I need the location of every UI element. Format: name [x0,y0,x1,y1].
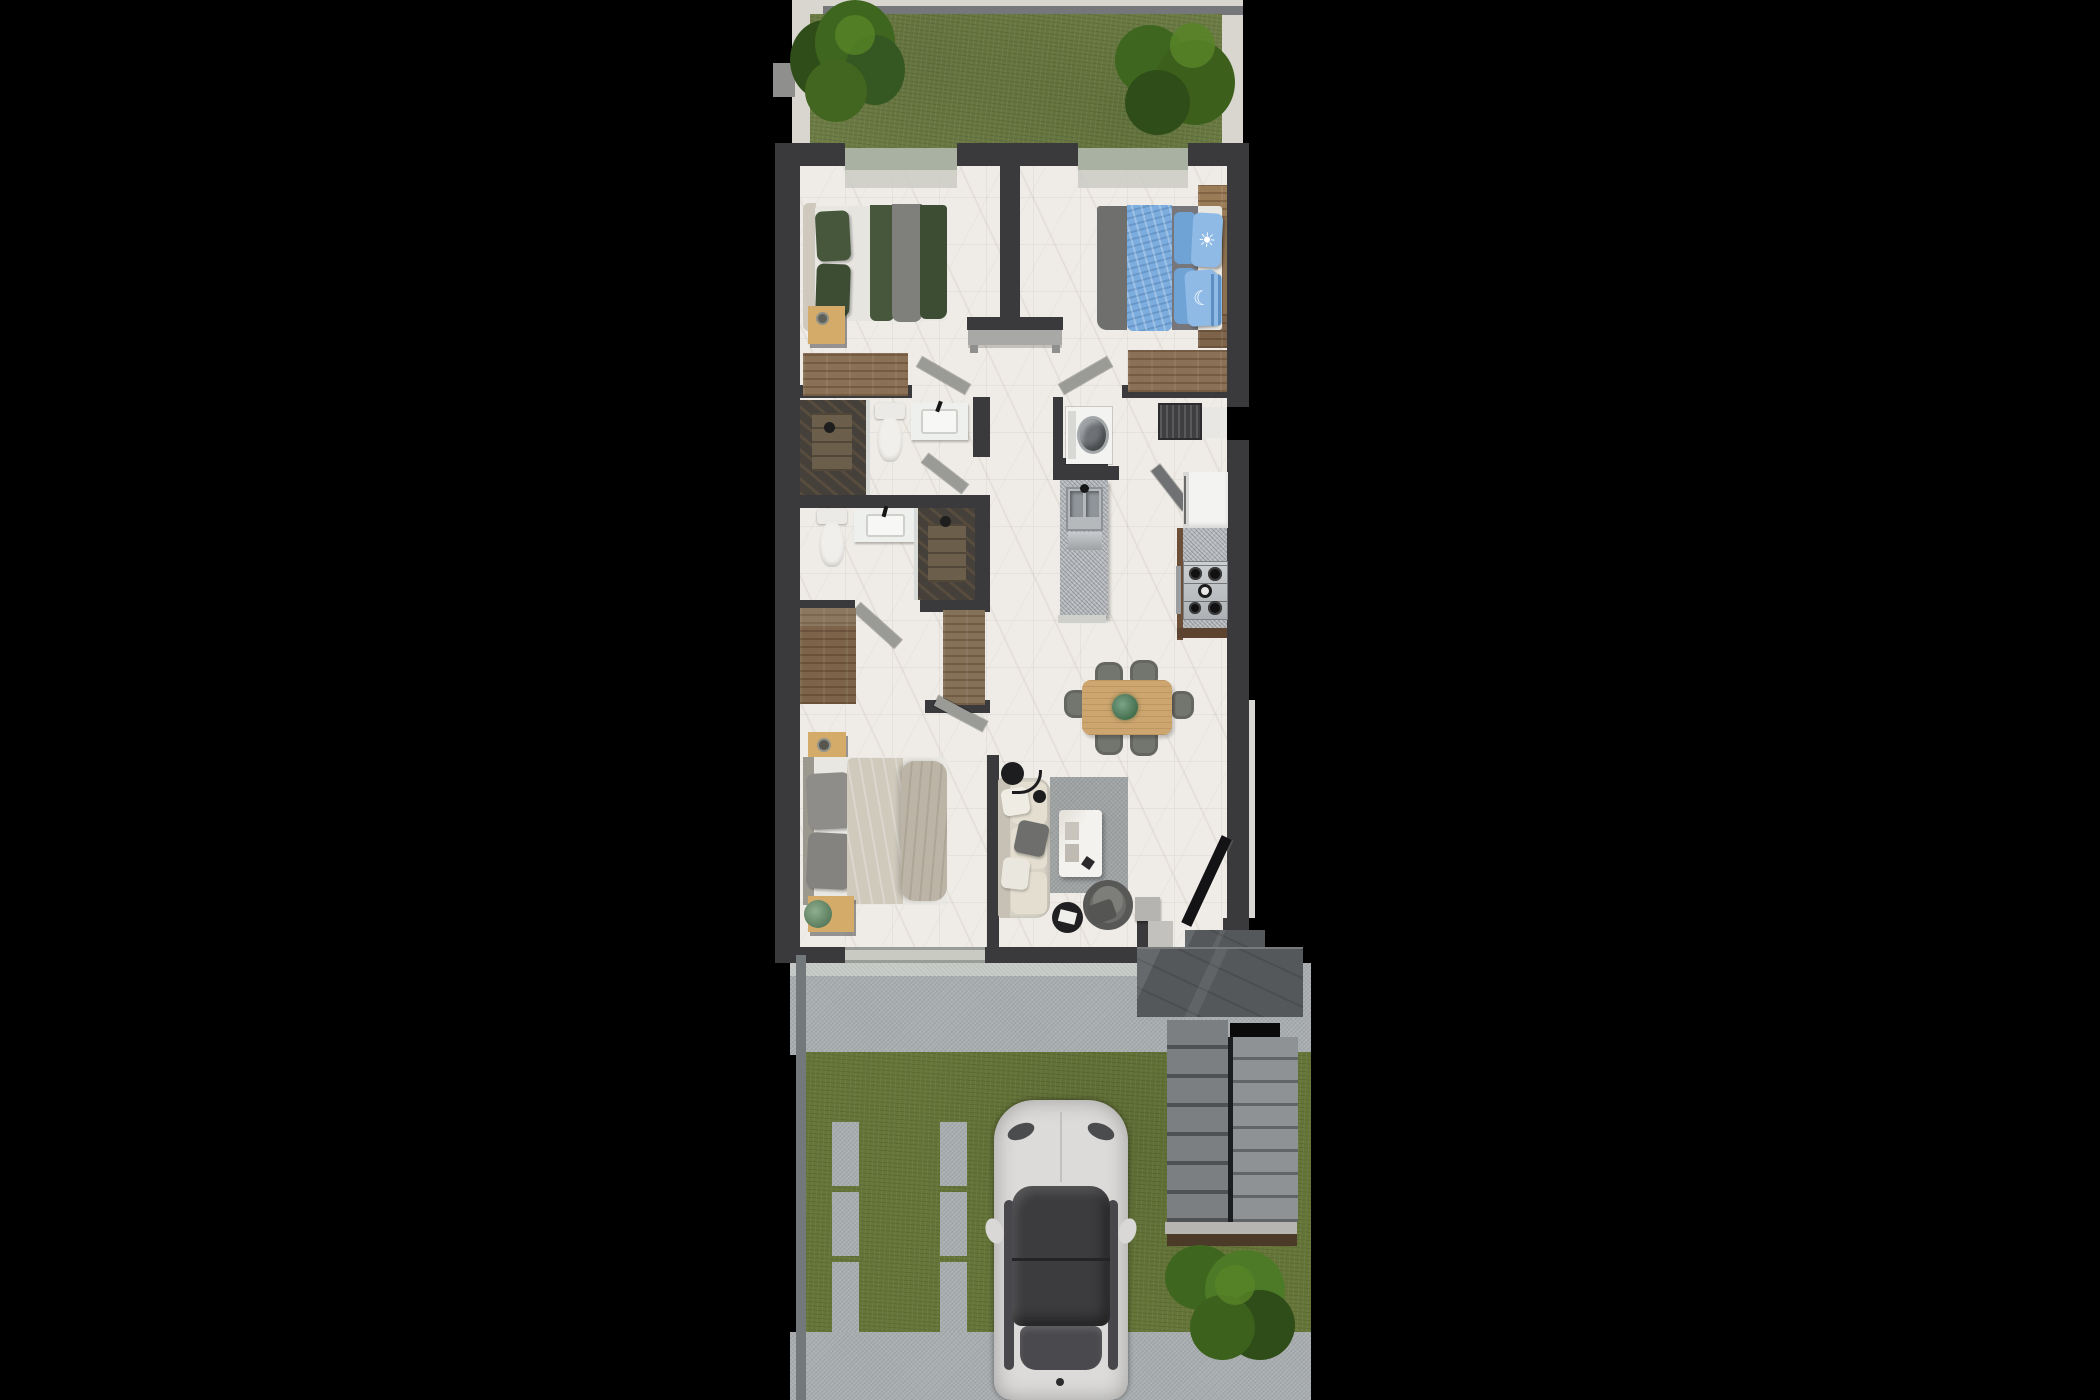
side-table-book [1058,909,1077,925]
bed-duvet-blue [1127,205,1172,331]
foliage-blob [805,60,867,122]
wall-bath2-east [973,508,990,612]
driveway-strip-segment [832,1192,859,1256]
bath1-shower-glass [866,400,870,495]
cup [816,312,829,325]
bath1-shower [800,400,866,495]
hall-console-leg [970,345,978,353]
hall-console-leg [1052,345,1060,353]
foliage-blob [1215,1265,1255,1305]
bath1-toilet [874,403,906,463]
master-bed [803,757,947,905]
foliage-blob [835,15,875,55]
driveway-strip-segment [832,1122,859,1186]
side-table [1052,902,1083,933]
potted-plant [804,900,832,928]
vanity-sink [921,409,958,434]
car-hood-line [1060,1112,1062,1182]
stairs-left-flight [1167,1020,1228,1222]
wall-left-outer [775,143,800,963]
kitchen-fridge [1183,472,1228,528]
entry-step [1135,897,1160,921]
washer-drum [1077,416,1109,454]
backyard-tree [780,0,920,150]
car-rear-window [1020,1326,1102,1370]
bed-pillow-striped [1207,274,1222,326]
washer-panel [1068,411,1076,459]
stair-tread [1233,1037,1298,1060]
front-terrazzo-strip [790,963,1137,976]
floor-lamp-shade [1033,790,1046,803]
stair-tread [1233,1152,1298,1175]
laundry-washer [1066,407,1112,464]
toilet-bowl [819,523,845,567]
bath2-shower-glass [914,508,918,600]
stair-tread [1233,1129,1298,1152]
driveway-strip-segment [940,1192,967,1256]
entry-threshold [1148,921,1173,947]
front-shrub [1155,1235,1305,1375]
backyard-shrub [1110,15,1240,150]
wall-right-outer-upper [1227,143,1249,407]
island-steel-panel [1068,532,1102,550]
stair-tread [1233,1198,1298,1222]
sofa-pillow-white [1000,857,1030,891]
floor-plan-canvas: ☀ ☾ [0,0,2100,1400]
fridge-handle [1184,476,1186,524]
toilet-tank [875,403,905,419]
front-patio-upper [1185,930,1265,948]
wall-bath1-east-upper [973,397,990,457]
toilet-bowl [877,418,903,462]
bath2-vanity [854,509,917,542]
stair-tread [1167,1194,1228,1222]
wardrobe-right [943,610,985,705]
driveway-strip-segment [940,1122,967,1186]
bed-pillow-green [815,210,852,262]
wall-bedroom-partition [1000,158,1020,318]
stove-grate-lines [1184,562,1227,619]
stairs-right-flight [1233,1037,1298,1222]
hall-console-bench [968,330,1062,345]
armchair [1083,880,1133,930]
stairs-landing [1165,1222,1297,1234]
kitchen-counter-wood-bottom [1177,628,1227,638]
wall-bath-middle [775,495,990,508]
stair-tread [1233,1175,1298,1198]
table-plant [1112,694,1138,720]
car [990,1100,1132,1400]
wardrobe-left [800,608,856,704]
laundry-vent-grille [1158,403,1202,440]
sink-bowl [1086,491,1099,517]
oven-handle [1176,566,1181,614]
bedroom1-bed [815,206,947,321]
sliding-glass-door [845,947,985,963]
master-pillow [806,772,853,830]
stair-tread [1167,1078,1228,1107]
driveway-left-shadow [796,955,806,1400]
stair-tread [1233,1083,1298,1106]
bath1-vanity [911,403,968,440]
bed-duvet-green-a [870,205,894,321]
stairs-gap-top [1230,1023,1280,1037]
wall-right-outer-lower [1227,440,1249,918]
stair-tread [1233,1106,1298,1129]
service-hatch-sill [1202,407,1227,438]
shower-head [940,516,951,527]
service-hatch-opening [1227,407,1249,440]
cup [817,738,831,752]
coffee-table-decor [1081,856,1095,870]
stair-tread [1167,1136,1228,1165]
vanity-sink [866,514,905,537]
bed-duvet-green-b [920,205,947,319]
stair-tread [1167,1107,1228,1136]
bedroom2-window [1078,148,1188,170]
kitchen-island-end [1058,615,1106,623]
kitchen-stove [1184,562,1227,619]
foliage-blob [1190,1295,1255,1360]
stair-tread [1167,1165,1228,1194]
wall-bottom-center [985,947,1137,963]
wall-hall-stub [967,317,1063,330]
bedroom1-nightstand [808,306,845,344]
shower-inner-tile [928,524,966,582]
master-pillow [806,832,853,890]
bedroom2-window-sill [1078,170,1188,188]
foliage-blob [1125,70,1190,135]
master-nightstand-bottom [808,896,854,932]
master-duvet-b [901,761,947,901]
sink-bowl [1070,491,1083,517]
bath2-toilet [816,509,848,567]
bedroom2-dresser [1128,350,1227,392]
kitchen-island [1060,480,1108,618]
coffee-table [1059,810,1102,877]
bath2-shower [918,508,975,600]
coffee-table-books [1065,822,1079,840]
bedroom1-dresser [803,353,908,396]
car-antenna [1056,1378,1064,1386]
wall-right-white-sliver [1249,700,1255,918]
shower-head [824,422,835,433]
stair-tread [1167,1020,1228,1049]
front-patio [1137,947,1303,1017]
sink-faucet [1080,484,1089,493]
foliage-blob [1170,23,1215,68]
car-roof-divider [1012,1258,1110,1261]
toilet-tank [817,509,847,524]
dining-chair [1172,691,1194,719]
bedroom2-bed: ☀ ☾ [1097,206,1222,330]
master-duvet-a [847,758,903,904]
island-sink [1066,487,1103,531]
wall-bottom-left [775,947,845,963]
bedroom1-window-sill [845,170,957,188]
bed-blanket-gray-a [1097,206,1127,330]
bedroom1-window [845,148,957,170]
bed-pillow-sun: ☀ [1191,212,1224,267]
stair-tread [1167,1049,1228,1078]
bed-sheet-fold [848,206,872,321]
car-roof-glass [1012,1186,1110,1326]
stair-tread [1233,1060,1298,1083]
bed-runner-gray [892,204,922,322]
dining-table [1082,680,1172,735]
driveway-strip-segment [940,1262,967,1332]
driveway-strip-segment [832,1262,859,1332]
